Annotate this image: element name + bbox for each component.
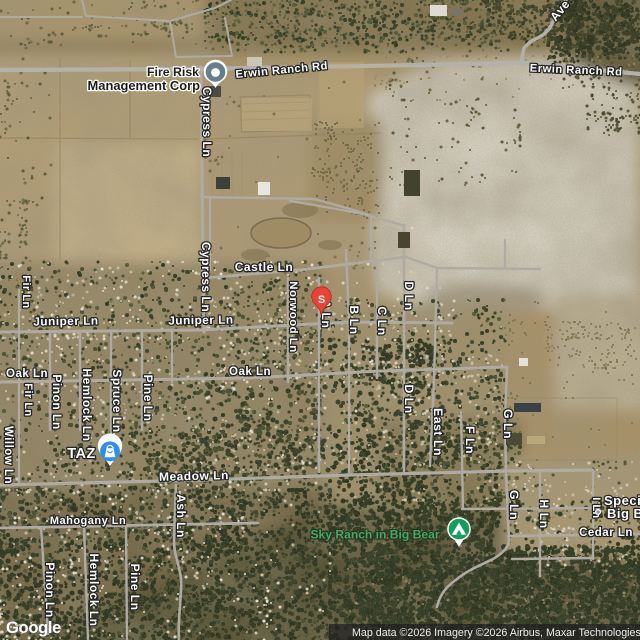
svg-text:Fir Ln: Fir Ln: [22, 383, 34, 417]
svg-text:Oak Ln: Oak Ln: [6, 368, 48, 380]
svg-text:Google: Google: [6, 619, 61, 637]
svg-text:Mahogany Ln: Mahogany Ln: [50, 515, 126, 527]
svg-text:G Ln: G Ln: [501, 409, 515, 439]
svg-text:Ash Ln: Ash Ln: [174, 494, 188, 538]
svg-text:D Ln: D Ln: [402, 384, 416, 413]
svg-text:Hemlock Ln: Hemlock Ln: [80, 368, 94, 441]
svg-text:C Ln: C Ln: [375, 306, 389, 335]
svg-text:Castle Ln: Castle Ln: [235, 260, 294, 274]
svg-text:Oak Ln: Oak Ln: [229, 366, 271, 378]
svg-text:Cypress Ln: Cypress Ln: [199, 242, 213, 312]
svg-text:East Ln: East Ln: [431, 408, 445, 456]
svg-text:Pine Ln: Pine Ln: [128, 564, 142, 611]
svg-text:Fire Risk: Fire Risk: [147, 65, 199, 79]
svg-text:Willow Ln: Willow Ln: [2, 426, 14, 484]
svg-text:Hemlock Ln: Hemlock Ln: [87, 553, 101, 626]
svg-text:Sky Ranch in Big Bear: Sky Ranch in Big Bear: [310, 528, 439, 542]
svg-text:Cypress Ln: Cypress Ln: [200, 87, 214, 157]
svg-text:Juniper Ln: Juniper Ln: [168, 312, 234, 327]
svg-text:Norwood Ln: Norwood Ln: [287, 281, 299, 352]
svg-text:Map data ©2026 Imagery ©2026 A: Map data ©2026 Imagery ©2026 Airbus, Max…: [352, 627, 640, 639]
svg-text:Meadow Ln: Meadow Ln: [159, 468, 229, 484]
svg-text:Fir Ln: Fir Ln: [20, 275, 32, 309]
svg-text:F Ln: F Ln: [463, 426, 477, 454]
svg-text:Pinon Ln: Pinon Ln: [50, 374, 64, 429]
svg-text:I Ln: I Ln: [590, 497, 602, 519]
svg-text:G Ln: G Ln: [507, 490, 521, 520]
svg-text:Management Corp: Management Corp: [88, 78, 201, 93]
svg-text:H Ln: H Ln: [537, 499, 551, 528]
svg-text:Pinon Ln: Pinon Ln: [43, 562, 57, 617]
svg-text:D Ln: D Ln: [402, 281, 416, 310]
svg-text:Juniper Ln: Juniper Ln: [33, 313, 99, 328]
svg-text:S: S: [318, 294, 325, 306]
svg-text:Big Be: Big Be: [607, 506, 640, 521]
svg-text:Spruce Ln: Spruce Ln: [110, 369, 124, 432]
svg-text:Pine Ln: Pine Ln: [141, 375, 155, 422]
svg-text:Cedar Ln: Cedar Ln: [579, 527, 633, 539]
svg-text:TAZ: TAZ: [67, 446, 96, 462]
svg-text:B Ln: B Ln: [347, 305, 361, 334]
